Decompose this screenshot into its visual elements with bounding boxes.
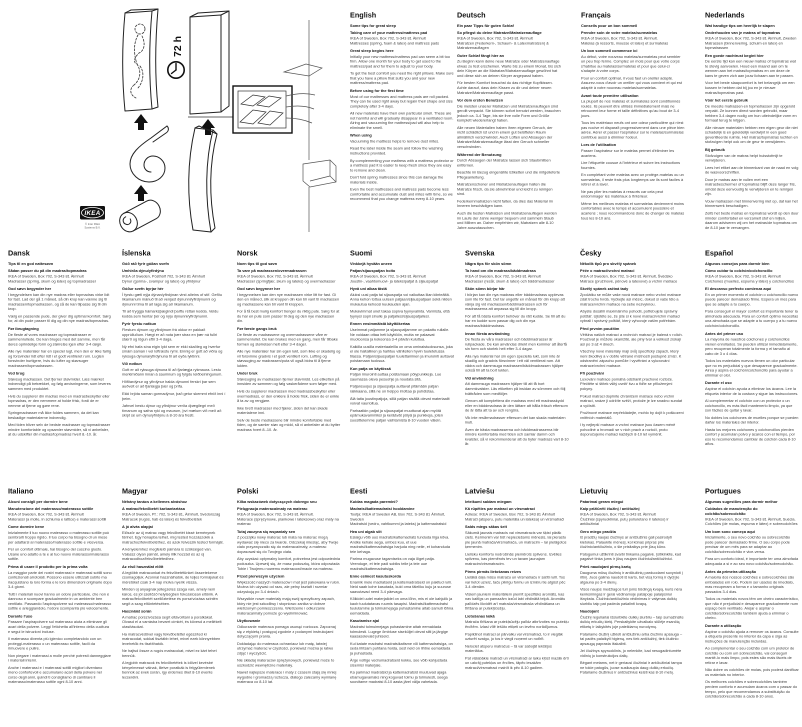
section-heading: Während der Benutzung bbox=[457, 152, 561, 157]
section-heading: Salds miegs sākas šeit bbox=[465, 525, 569, 530]
section-paragraph: För att få bästa komfort behöver du rätt… bbox=[465, 314, 569, 328]
column-tagline: Ein paar Tipps für guten Schlaf bbox=[457, 23, 561, 28]
section-paragraph: Lielākā daļa mūsu matraču un virsmatraču… bbox=[465, 575, 569, 589]
section-heading: Avant toute première utilisation bbox=[581, 93, 685, 98]
section-heading: Prieš naudojant pirmą kartą bbox=[580, 564, 684, 569]
column-sections: Hyvä uni alkaa tästäAluksi uusi patja ta… bbox=[350, 287, 454, 423]
section-paragraph: Não dobre os colchões de molas, pois pod… bbox=[705, 668, 799, 678]
language-name: Nederlands bbox=[705, 12, 799, 20]
section-heading: Ved brug bbox=[8, 371, 112, 376]
section-paragraph: Lees het etiket aan de binnenkant van de… bbox=[705, 165, 799, 175]
section-paragraph: Aluksi uusi patja tai sijauspatja voi va… bbox=[350, 292, 454, 306]
column-title: Cuidados de manutenção do colchão/sobrec… bbox=[705, 507, 799, 517]
section-paragraph: Att dammsuga madrassen hjälper till att … bbox=[465, 382, 569, 396]
language-name: Polski bbox=[237, 488, 341, 496]
column-products: Colchões (de molas, espuma e látex) e so… bbox=[705, 522, 799, 527]
language-column-dansk: Dansk Tips til en god nattesøvn Sådan pa… bbox=[8, 250, 112, 439]
section-heading: Under bruk bbox=[237, 371, 341, 376]
section-heading: Enne esimest kasutuskorda bbox=[350, 574, 454, 579]
section-paragraph: Initially your new mattress/mattress pad… bbox=[350, 54, 454, 68]
column-products: Matelas (à ressorts, mousse et latex) et… bbox=[581, 41, 685, 46]
section-heading: Az első használat előtt bbox=[122, 564, 226, 569]
section-paragraph: Read the label inside the seam and follo… bbox=[350, 146, 454, 156]
section-paragraph: Para conseguir el mayor confort es impor… bbox=[705, 309, 799, 328]
section-paragraph: Pokud matraci doplníte chráničem matrace… bbox=[580, 394, 684, 408]
section-paragraph: La plupart de nos matelas et surmatelas … bbox=[581, 99, 685, 118]
language-column-norsk: Norsk Noen tips til god søvn Ta vare på … bbox=[237, 250, 341, 435]
section-paragraph: Kõikidel uutel materjalidel on oma lõhn,… bbox=[350, 597, 454, 616]
section-heading: Før første gangs bruk bbox=[237, 326, 341, 331]
column-title: Ta vare på madrassen/overmadrassen bbox=[237, 269, 341, 274]
language-column-magyar: Magyar Néhány tanács a kellemes alváshoz… bbox=[122, 488, 226, 682]
section-paragraph: Bėgant metams, net ir geriausi čiužiniai… bbox=[580, 661, 684, 675]
section-paragraph: Støvsug madrassen. Det fjerner støvmider… bbox=[8, 377, 112, 391]
section-paragraph: Støvsuging av madrassen fjerner støvmidd… bbox=[237, 377, 341, 387]
section-heading: Kun patja on käytössä bbox=[350, 366, 454, 371]
section-paragraph: Tutti i materiali nuovi hanno un odore p… bbox=[8, 592, 112, 611]
section-paragraph: A legjobb matracok és fekvőbetétek is id… bbox=[122, 661, 226, 680]
section-paragraph: Ikke brett madrasser med fjærer, siden d… bbox=[237, 406, 341, 416]
language-name: Česky bbox=[580, 250, 684, 258]
section-heading: Prima di usare il prodotto per la prima … bbox=[8, 564, 112, 569]
section-heading: Lietošanas laikā bbox=[465, 614, 569, 619]
language-name: Svenska bbox=[465, 250, 569, 258]
section-paragraph: Vik inte resårmadrasser eftersom det kan… bbox=[465, 415, 569, 425]
section-paragraph: Älä taita joustinpatjoja, sillä patjan s… bbox=[350, 396, 454, 406]
section-paragraph: Kui katate madratsi madratsikaitsme või … bbox=[350, 641, 454, 655]
column-tagline: Några tips för skön sömn bbox=[465, 261, 569, 266]
section-paragraph: Auch die besten Matratzen und Matratzena… bbox=[457, 211, 561, 230]
column-tagline: Some tips for great sleep bbox=[350, 23, 454, 28]
column-title: Péče o matraci/vrchní matraci bbox=[580, 269, 684, 274]
section-heading: Durante l'uso bbox=[8, 614, 112, 619]
section-paragraph: De meeste matrassen en topmatrassen zijn… bbox=[705, 104, 799, 123]
section-paragraph: All new materials have their own particu… bbox=[350, 111, 454, 130]
section-paragraph: Alle neuen Materialien haben ihren eigen… bbox=[457, 125, 561, 149]
section-paragraph: Pat vislabākie matrači un virsmatrači ar… bbox=[465, 656, 569, 670]
section-paragraph: La maggior parte dei nostri materassi e … bbox=[8, 570, 112, 589]
section-paragraph: To get the best comfort you need the rig… bbox=[350, 71, 454, 85]
section-paragraph: Ao complementar o seu colchão com um pro… bbox=[705, 646, 799, 665]
section-paragraph: Enamik meie madratseid ja kattemadratsei… bbox=[350, 580, 454, 594]
column-tagline: Conseils pour un bon sommeil bbox=[581, 23, 685, 28]
section-paragraph: Flestum dýnum og yfirdýnum frá okkur er … bbox=[122, 327, 226, 341]
column-tagline: Několik tipů pro skvělý spánek bbox=[580, 261, 684, 266]
section-paragraph: Patjan imurointi auttaa poistamaan pölyp… bbox=[350, 372, 454, 382]
ikea-logo-text: IKEA bbox=[85, 210, 101, 217]
up-arrow-icon bbox=[134, 114, 148, 130]
section-heading: Lors de l'utilisation bbox=[581, 143, 685, 148]
section-paragraph: Vacuuming the mattress helps to remove d… bbox=[350, 139, 454, 144]
language-name: Deutsch bbox=[457, 12, 561, 20]
column-sections: Een goede nachtrust begint hierDe eerste… bbox=[705, 53, 799, 230]
column-title: Patjan/sijauspatjan hoito bbox=[350, 269, 454, 274]
section-heading: God søvn begynder her bbox=[8, 287, 112, 292]
section-paragraph: Čiužinį reguliariai išsiurbkite dulkių s… bbox=[580, 615, 684, 629]
language-name: Magyar bbox=[122, 488, 226, 496]
column-products: Materace (sprężynowe, piankowe i latekso… bbox=[237, 517, 341, 527]
section-paragraph: Per un comfort ottimale, hai bisogno del… bbox=[8, 547, 112, 561]
column-tagline: Ieteikumi saldam miegam bbox=[465, 499, 569, 504]
section-paragraph: Z początku nowy materac lub mata na mate… bbox=[237, 535, 341, 554]
section-paragraph: Parhaatkin patjat ja sijauspatjat muuttu… bbox=[350, 408, 454, 422]
column-title: Madratsi/kattemadratsi hooldamine bbox=[350, 507, 454, 512]
column-products: Madrasser (springfjær, skum og lateks) o… bbox=[237, 279, 341, 284]
section-paragraph: Aspirar o colchão ajuda a remover os áca… bbox=[705, 629, 799, 643]
column-tagline: Néhány tanács a kellemes alváshoz bbox=[122, 499, 226, 504]
section-heading: Før ibrugtagning bbox=[8, 326, 112, 331]
section-heading: Durante el uso bbox=[705, 381, 799, 386]
section-heading: Při používání bbox=[580, 371, 684, 376]
instruction-leaflet-page: 72 h bbox=[0, 0, 802, 727]
section-paragraph: A maioria dos nossos colchões e sobrecol… bbox=[705, 575, 799, 594]
section-heading: Um bom sono começa aqui bbox=[705, 529, 799, 534]
column-tagline: Patarimai geram miegui bbox=[580, 499, 684, 504]
column-tagline: Kilka wskazówek dotyczących dobrego snu bbox=[237, 499, 341, 504]
language-column-polski: Polski Kilka wskazówek dotyczących dobre… bbox=[237, 488, 341, 687]
section-paragraph: Lire l'étiquette cousue à l'intérieur et… bbox=[581, 161, 685, 171]
section-paragraph: Zu Beginn kann deine neue Matratze oder … bbox=[457, 59, 561, 78]
language-column-latviesu: Latviešu Ieteikumi saldam miegam Kā rūpē… bbox=[465, 488, 569, 673]
section-paragraph: Tous les matériaux neufs ont une odeur p… bbox=[581, 121, 685, 140]
section-paragraph: Madratsi tolmuimejaga puhastamine aitab … bbox=[350, 624, 454, 638]
section-paragraph: Til að tryggja hámarksþægindi þarftu rét… bbox=[122, 309, 226, 319]
section-paragraph: By complementing your mattress with a ma… bbox=[350, 158, 454, 172]
language-column-eesti: Eesti Kuidas magada paremini? Madratsi/k… bbox=[350, 488, 454, 687]
section-paragraph: Dauguma mūsų čiužinių ir antčiužinių par… bbox=[580, 570, 684, 584]
section-paragraph: Ka parimad madratsid ja kattemadratsid m… bbox=[350, 670, 454, 684]
column-sections: Great sleep begins hereInitially your ne… bbox=[350, 49, 454, 202]
column-title: Ta hand om din madrass/bäddmadrass bbox=[465, 269, 569, 274]
column-sections: Góður svefn byrjar hérÍ fyrstu gæti nýja… bbox=[122, 287, 226, 418]
section-heading: Użytkowanie bbox=[237, 619, 341, 624]
section-heading: A jó alvás alapjai bbox=[122, 525, 226, 530]
column-sections: Skvělý spánek začíná tadyZpočátku se můž… bbox=[580, 287, 684, 437]
illustration-area: 72 h bbox=[0, 0, 345, 240]
bowed-mattress-illustration bbox=[189, 126, 217, 232]
section-paragraph: De flesta av våra madrasser och bäddmadr… bbox=[465, 337, 569, 351]
section-paragraph: Nie składaj materaców sprężynowych, poni… bbox=[237, 658, 341, 668]
language-column-francais: Français Conseils pour un bon sommeil Pr… bbox=[581, 12, 685, 223]
clock-icon bbox=[168, 62, 184, 78]
section-paragraph: Useimmat patjamme ja sijauspatjamme on p… bbox=[350, 327, 454, 341]
language-name: Eesti bbox=[350, 488, 454, 496]
column-title: Manutenzione del materasso/materasso sot… bbox=[8, 507, 112, 512]
section-heading: Antes da primeira utilização bbox=[705, 569, 799, 574]
section-paragraph: Door je matras aan te vullen met een mat… bbox=[705, 177, 799, 196]
section-paragraph: Większość naszych materaców i mat jest p… bbox=[237, 580, 341, 594]
section-paragraph: Even the best mattresses and mattress pa… bbox=[350, 187, 454, 201]
section-paragraph: Inizialmente il tuo nuovo materasso o ma… bbox=[8, 530, 112, 544]
section-paragraph: Nawet najlepsze materace i maty z czasem… bbox=[237, 670, 341, 684]
section-paragraph: Non piegare i materassi a molle perché p… bbox=[8, 653, 112, 663]
section-paragraph: Für besten Komfort brauchst du das richt… bbox=[457, 81, 561, 95]
column-tagline: Kuidas magada paremini? bbox=[350, 499, 454, 504]
section-paragraph: Většina našich matrací a vrchních matrac… bbox=[580, 332, 684, 346]
language-name: Íslenska bbox=[122, 250, 226, 258]
column-sections: Un bon sommeil commence iciAu début, vot… bbox=[581, 49, 685, 221]
column-tagline: Vinkkejä hyvään uneen bbox=[350, 261, 454, 266]
language-name: Italiano bbox=[8, 488, 112, 496]
section-heading: Vid användning bbox=[465, 376, 569, 381]
column-sections: A jó alvás alapjaiElőször az új matrac v… bbox=[122, 525, 226, 680]
column-sections: Gero miego pradžiaIš pradžių naujas čiuž… bbox=[580, 529, 684, 675]
section-paragraph: Alle nieuwe materialen hebben een eigen … bbox=[705, 125, 799, 144]
language-column-islenska: Íslenska Góð ráð fyrir góðan svefn Umhir… bbox=[122, 250, 226, 420]
section-paragraph: De fleste af vores madrasser og topmadra… bbox=[8, 332, 112, 346]
language-column-portugues: Portugues Algumas sugestões para dormir … bbox=[705, 488, 799, 701]
section-heading: Come dormire bene bbox=[8, 525, 112, 530]
section-heading: Skvělý spánek začíná tady bbox=[580, 287, 684, 292]
section-paragraph: Zpočátku se může vaše nová matrace nebo … bbox=[580, 292, 684, 306]
section-paragraph: Jei čiužinys spyruoklinis, jo nelenkite,… bbox=[580, 649, 684, 659]
up-arrow-icon bbox=[134, 185, 148, 201]
section-paragraph: Genom att komplettera din madrass med et… bbox=[465, 399, 569, 413]
section-heading: El descanso perfecto comienza aquí bbox=[705, 287, 799, 292]
column-tagline: Wat handige tips om heerlijk te slapen bbox=[705, 23, 799, 28]
language-column-suomi: Suomi Vinkkejä hyvään uneen Patjan/sijau… bbox=[350, 250, 454, 425]
slatted-base-detail-frame bbox=[233, 86, 315, 133]
section-paragraph: Matrača tīrīšana ar putekļsūcēju palīdz … bbox=[465, 620, 569, 630]
column-title: So pflegst du deine Matratze/Matratzenau… bbox=[457, 31, 561, 36]
copyright-line-2: Systems B.V. bbox=[85, 225, 101, 229]
column-title: Onderhouden van je matras of topmatras bbox=[705, 31, 799, 36]
column-tagline: Algumas sugestões para dormir melhor bbox=[705, 499, 799, 504]
language-name: Norsk bbox=[237, 250, 341, 258]
section-paragraph: Anche i materassi e i materassi sottili … bbox=[8, 665, 112, 684]
language-name: Dansk bbox=[8, 250, 112, 258]
section-heading: Před prvním použitím bbox=[580, 326, 684, 331]
section-heading: Guter Schlaf fängt hier an bbox=[457, 53, 561, 58]
section-paragraph: De fleste av madrassene og overmadrassen… bbox=[237, 332, 341, 346]
section-paragraph: Most of our mattresses and mattress pads… bbox=[350, 94, 454, 108]
section-paragraph: Hvis du supplerer madrassen med madrassb… bbox=[237, 389, 341, 403]
language-name: Lietuvių bbox=[580, 488, 684, 496]
section-heading: Durante a utilização bbox=[705, 623, 799, 628]
section-heading: Tutaj zaczyna się wspaniały sen bbox=[237, 529, 341, 534]
language-name: Suomi bbox=[350, 250, 454, 258]
language-column-italiano: Italiano Alcuni consigli per dormire ben… bbox=[8, 488, 112, 687]
section-heading: Bij gebruik bbox=[705, 147, 799, 152]
section-paragraph: Jafnvel bestu dýnur og yfirdýnur verða ó… bbox=[122, 404, 226, 418]
language-column-nederlands: Nederlands Wat handige tips om heerlijk … bbox=[705, 12, 799, 233]
section-paragraph: Todos los materiales nuevos tienen un ol… bbox=[705, 359, 799, 378]
section-paragraph: Aspirar el colchón ayuda a eliminar los … bbox=[705, 386, 799, 396]
mattress-pad-with-sleeper-illustration bbox=[123, 9, 158, 111]
language-name: Latviešu bbox=[465, 488, 569, 496]
section-paragraph: Minden új anyagnak jellegzetes szaga van… bbox=[122, 587, 226, 606]
section-paragraph: Alle nye materialer har sin egen lukt, s… bbox=[237, 349, 341, 368]
section-paragraph: Même les meilleurs matelas et surmatelas… bbox=[581, 201, 685, 220]
section-heading: Skön sömn börjar här bbox=[465, 287, 569, 292]
section-paragraph: Hasta los mejores colchones y colchoncil… bbox=[705, 427, 799, 446]
column-products: Madrasser (spring, skum og latex) og top… bbox=[8, 279, 112, 284]
column-tagline: Noen tips til god søvn bbox=[237, 261, 341, 266]
column-sections: Hea uni algab siitEsialgu võib uus madra… bbox=[350, 529, 454, 684]
language-name: Portugues bbox=[705, 488, 799, 496]
section-paragraph: Vælg en passende pude, der giver dig opt… bbox=[8, 314, 112, 324]
column-sections: God søvn begynner herI begynnelsen kan d… bbox=[237, 287, 341, 433]
section-heading: Við notkun bbox=[122, 362, 226, 367]
section-paragraph: Ärge voltige vedrumadratseid kokku, see … bbox=[350, 658, 454, 668]
section-paragraph: Wszystkie nowe materiały mają swój specy… bbox=[237, 597, 341, 616]
section-paragraph: Inicialmente, o seu novo colchão ou sobr… bbox=[705, 535, 799, 554]
section-heading: Hyvä uni alkaa tästä bbox=[350, 287, 454, 292]
column-products: Colchones (muelles, espuma y látex) y co… bbox=[705, 279, 799, 284]
section-heading: Ennen ensimmäistä käyttökertaa bbox=[350, 322, 454, 327]
section-paragraph: A matrac porszívózása segít eltávolítani… bbox=[122, 615, 226, 629]
section-paragraph: Även de bästa madrasserna och bäddmadras… bbox=[465, 427, 569, 446]
ikea-logo: IKEA © Inter IKEA Systems B.V. bbox=[80, 206, 105, 229]
section-paragraph: Patariame čiužinį užkloti antčiužiniu ar… bbox=[580, 632, 684, 646]
section-heading: When using bbox=[350, 133, 454, 138]
column-sections: Guter Schlaf fängt hier anZu Beginn kann… bbox=[457, 53, 561, 230]
section-paragraph: Beachte im Bezug eingenähte Etiketten un… bbox=[457, 170, 561, 180]
language-column-deutsch: Deutsch Ein paar Tipps für guten Schlaf … bbox=[457, 12, 561, 233]
section-paragraph: Para um conforto ideal, é importante ter… bbox=[705, 557, 799, 567]
section-paragraph: Passer l'aspirateur sur le matelas perme… bbox=[581, 148, 685, 158]
language-name: Español bbox=[705, 250, 799, 258]
section-heading: Antes del primer uso bbox=[705, 331, 799, 336]
language-column-espanol: Español Algunos consejos para dormir bie… bbox=[705, 250, 799, 449]
rolled-pad-illustration bbox=[116, 197, 163, 235]
section-paragraph: Sākumā jaunais matracis vai virsmatracis… bbox=[465, 530, 569, 549]
section-paragraph: Kaikilla uusilla materiaaleilla on oma o… bbox=[350, 344, 454, 363]
section-paragraph: Először az új matrac vagy fekvőbetét kis… bbox=[122, 530, 226, 544]
column-sections: Come dormire beneInizialmente il tuo nuo… bbox=[8, 525, 112, 685]
section-heading: Naudojant bbox=[580, 609, 684, 614]
section-paragraph: Voor het beste slaapcomfort is het belan… bbox=[705, 81, 799, 95]
column-title: Sådan passer du på din madras/topmadras bbox=[8, 269, 112, 274]
column-title: Taking care of your mattress/mattress pa… bbox=[350, 31, 454, 36]
section-paragraph: A kényelemhez megfelelő párnára is szüks… bbox=[122, 547, 226, 561]
section-paragraph: Selv de beste madrassene blir mindre kom… bbox=[237, 418, 341, 432]
section-heading: Góður svefn byrjar hér bbox=[122, 287, 226, 292]
column-products: Materassi (a molle, in schiuma e lattice… bbox=[8, 517, 112, 522]
section-heading: Pirms pirmās lietošanas reizes bbox=[465, 569, 569, 574]
section-heading: Een goede nachtrust begint hier bbox=[705, 53, 799, 58]
column-title: Prendre soin de votre matelas/surmatelas bbox=[581, 31, 685, 36]
section-heading: Fyrir fyrstu notkun bbox=[122, 322, 226, 327]
column-products: Madrasser (resår, skum & latex) och bädd… bbox=[465, 279, 569, 284]
column-sections: Skön sömn börjar härI början kan din nya… bbox=[465, 287, 569, 447]
column-products: Mattresses (spring, foam & latex) and ma… bbox=[350, 41, 454, 46]
language-column-svenska: Svenska Några tips för skön sömn Ta hand… bbox=[465, 250, 569, 449]
section-heading: Before using for the first time bbox=[350, 88, 454, 93]
column-products: Joustin-, vaahtomuovi- ja lateksipatjat … bbox=[350, 279, 454, 284]
section-paragraph: Ekki brjóta saman gormadýnur, það getur … bbox=[122, 391, 226, 401]
section-paragraph: Zelfs het beste matras en topmatras word… bbox=[705, 211, 799, 230]
section-paragraph: La mayoría de nuestros colchones y colch… bbox=[705, 337, 799, 356]
section-paragraph: Visos naujos medžiagos turi joms būdingą… bbox=[580, 587, 684, 606]
section-paragraph: Il materasso diventa più igienico comple… bbox=[8, 637, 112, 651]
section-paragraph: Ný efni hafa sína eigin lykt sem er ekki… bbox=[122, 344, 226, 358]
column-sections: El descanso perfecto comienza aquíEn un … bbox=[705, 287, 799, 447]
section-paragraph: Med tiden bliver selv de bedste madrasse… bbox=[8, 423, 112, 437]
section-paragraph: En complétant votre matelas avec un prot… bbox=[581, 173, 685, 187]
column-title: A matrac/fekvőbetét karbantartása bbox=[122, 507, 226, 512]
column-sections: Um bom sono começa aquiInicialmente, o s… bbox=[705, 529, 799, 698]
section-paragraph: Papildinot matraci ar pārvalku vai virsm… bbox=[465, 632, 569, 642]
column-sections: God søvn begynder herI begyndelsen kan d… bbox=[8, 287, 112, 437]
section-paragraph: A legtöbb matracunkat és fekvőbetétünket… bbox=[122, 570, 226, 584]
section-paragraph: Au début, votre nouveau matelas/surmatel… bbox=[581, 54, 685, 73]
section-paragraph: Ne pas plier les matelas à ressorts car … bbox=[581, 189, 685, 199]
section-paragraph: Visiem jauniem materiāliem piemīt specif… bbox=[465, 592, 569, 611]
section-paragraph: Matratzenschoner und Matratzenauflagen h… bbox=[457, 182, 561, 196]
language-name: English bbox=[350, 12, 454, 20]
section-paragraph: Parima mugavuse tagamiseks on vaja õiget… bbox=[350, 557, 454, 571]
section-paragraph: Aby uzyskać optymalny komfort, potrzebna… bbox=[237, 557, 341, 571]
section-paragraph: Ne hajtsd össze a rugós matracokat, mive… bbox=[122, 649, 226, 659]
copyright-line-1: © Inter IKEA bbox=[85, 222, 100, 226]
duration-label: 72 h bbox=[172, 36, 184, 57]
section-paragraph: For å få best mulig komfort trenger du r… bbox=[237, 309, 341, 323]
section-paragraph: Abyste dosáhli maximálního pohodlí, potř… bbox=[580, 309, 684, 323]
column-products: Matrači (atsperu, putu materiāla un late… bbox=[465, 517, 569, 522]
section-paragraph: Al complementar el colchón con un protec… bbox=[705, 399, 799, 413]
column-title: Kā rūpēties par matraci un virsmatraci bbox=[465, 507, 569, 512]
section-paragraph: Nelociet atsperu matračus – tā var saboj… bbox=[465, 644, 569, 654]
section-paragraph: Esialgu võib uus madrats/kattemadrats tu… bbox=[350, 535, 454, 554]
section-paragraph: Vouw matrassen met binnenvering niet op,… bbox=[705, 199, 799, 209]
column-tagline: Alcuni consigli per dormire bene bbox=[8, 499, 112, 504]
section-paragraph: Pour un confort optimal, il vous faut un… bbox=[581, 76, 685, 90]
language-column-cesky: Česky Několik tipů pro skvělý spánek Péč… bbox=[580, 250, 684, 439]
column-products: Matrassen (binnenvering, schuim en latex… bbox=[705, 41, 799, 51]
section-paragraph: Dokładając do materaca ochraniacz lub ma… bbox=[237, 641, 341, 655]
column-sections: Tutaj zaczyna się wspaniały senZ początk… bbox=[237, 529, 341, 684]
column-tagline: Tips til en god nattesøvn bbox=[8, 261, 112, 266]
column-products: Dýnur (gorma-, svampur og latex) og yfir… bbox=[122, 279, 226, 284]
section-paragraph: Alle nye materialer har en speciel lugt,… bbox=[8, 349, 112, 368]
section-paragraph: Gott er að ryksuga dýnuna til að fjarlæg… bbox=[122, 367, 226, 377]
section-paragraph: Os melhores colchões e sobrecolchões tam… bbox=[705, 680, 799, 699]
section-paragraph: Mukavimmat unet takaa sopiva tyynyvalint… bbox=[350, 309, 454, 319]
section-heading: Kasutamise ajal bbox=[350, 619, 454, 624]
column-sections: Salds miegs sākas šeitSākumā jaunais mat… bbox=[465, 525, 569, 671]
section-heading: Hea uni algab siit bbox=[350, 529, 454, 534]
section-paragraph: Federkernmatratzen nicht falten, da dies… bbox=[457, 199, 561, 209]
column-products: Madratsid (vedru, vahtkummi ja lateks) j… bbox=[350, 522, 454, 527]
section-paragraph: Odkurzanie materaca pomaga usunąć roztoc… bbox=[237, 624, 341, 638]
section-paragraph: I början kan din nya madrass eller bäddm… bbox=[465, 292, 569, 311]
column-title: Kaip prižiūrėti čiužinį / antčiužinį bbox=[580, 507, 684, 512]
column-title: Pielęgnacja materaca/maty na materac bbox=[237, 507, 341, 512]
section-paragraph: Luxování matrace pomáhá odstranit pracho… bbox=[580, 377, 684, 391]
section-paragraph: I begynnelsen kan den nye madrassen virk… bbox=[237, 292, 341, 306]
language-column-lietuviu: Lietuvių Patarimai geram miegui Kaip pri… bbox=[580, 488, 684, 677]
section-paragraph: Todos os materiais novos têm um cheiro c… bbox=[705, 597, 799, 621]
section-paragraph: Die meisten unserer Matratzen und Matrat… bbox=[457, 104, 561, 123]
column-title: Cómo cuidar tu colchón/colchoncillo bbox=[705, 269, 799, 274]
section-paragraph: Patogumui užtikrinti svarbi tinkama paga… bbox=[580, 552, 684, 562]
section-paragraph: Pružinové matrace nepřekládejte, mohlo b… bbox=[580, 411, 684, 421]
section-paragraph: Durch Absaugen der Matratze lassen sich … bbox=[457, 158, 561, 168]
section-heading: Vóór het eerste gebruik bbox=[705, 98, 799, 103]
flat-mattress-illustration bbox=[188, 11, 233, 117]
section-paragraph: Patjansuojus ja sijauspatja auttavat pit… bbox=[350, 384, 454, 394]
column-products: Čiužiniai (spyruokliniai, putų poliureta… bbox=[580, 517, 684, 527]
section-paragraph: Passare l'aspirapolvere sul materasso ai… bbox=[8, 620, 112, 634]
section-paragraph: I begyndelsen kan din nye madras eller t… bbox=[8, 292, 112, 311]
section-heading: Great sleep begins here bbox=[350, 49, 454, 54]
column-products: Matratzen (Federkern-, Schaum- & Latexma… bbox=[457, 41, 561, 51]
section-paragraph: Ha matracvédővel vagy fekvőbetéttel egés… bbox=[122, 632, 226, 646]
section-heading: Innan första användning bbox=[465, 331, 569, 336]
section-paragraph: Hvis du supplerer din madras med en madr… bbox=[8, 394, 112, 408]
section-paragraph: Don't fold spring mattresses since this … bbox=[350, 175, 454, 185]
